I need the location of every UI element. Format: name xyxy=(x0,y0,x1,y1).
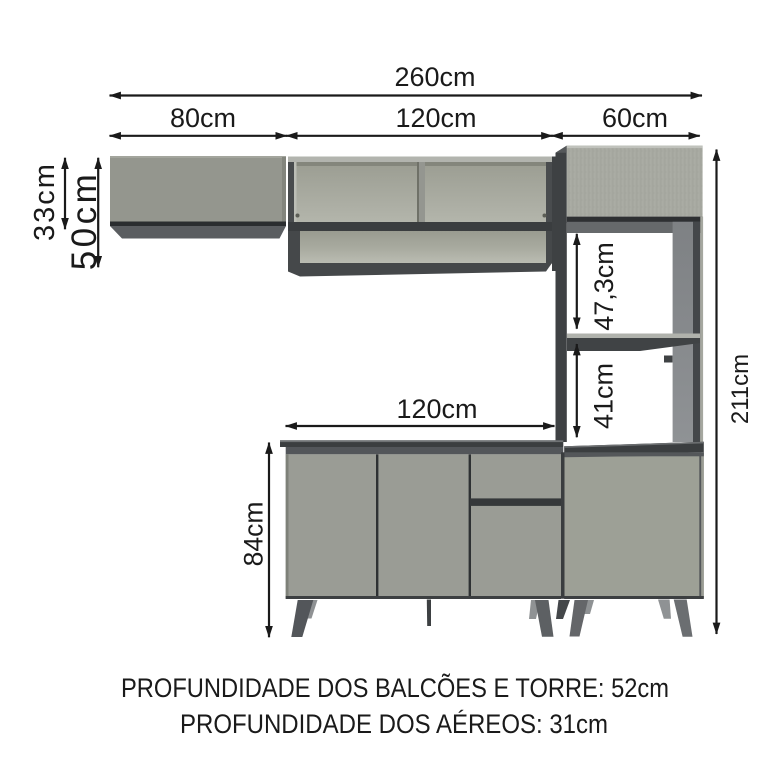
svg-text:50cm: 50cm xyxy=(65,171,104,271)
svg-text:41cm: 41cm xyxy=(589,363,619,429)
svg-text:120cm: 120cm xyxy=(395,103,476,133)
svg-text:PROFUNDIDADE DOS AÉREOS: 31cm: PROFUNDIDADE DOS AÉREOS: 31cm xyxy=(180,709,608,739)
svg-text:60cm: 60cm xyxy=(602,103,668,133)
svg-text:47,3cm: 47,3cm xyxy=(589,242,619,331)
svg-text:260cm: 260cm xyxy=(394,62,475,92)
svg-text:33cm: 33cm xyxy=(29,162,61,241)
svg-text:120cm: 120cm xyxy=(396,394,477,424)
svg-text:84cm: 84cm xyxy=(239,502,269,567)
svg-text:PROFUNDIDADE DOS BALCÕES E TOR: PROFUNDIDADE DOS BALCÕES E TORRE: 52cm xyxy=(121,672,669,703)
svg-text:80cm: 80cm xyxy=(170,103,236,133)
svg-text:211cm: 211cm xyxy=(727,354,754,424)
